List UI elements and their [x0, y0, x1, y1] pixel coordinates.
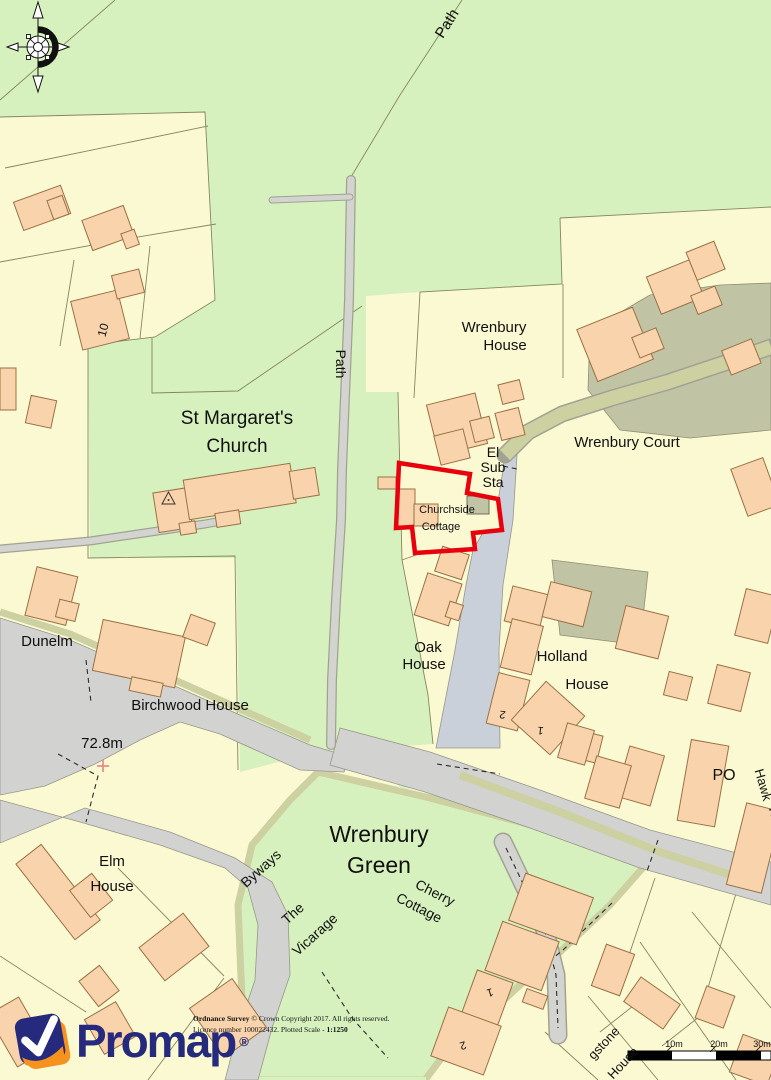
label-scale-30m: 30m — [753, 1039, 771, 1049]
label-birchwood: Birchwood House — [131, 697, 249, 714]
label-scale-20m: 20m — [710, 1039, 728, 1049]
label-wrenbury-green-1: Wrenbury — [329, 821, 429, 847]
copyright-line: © Crown Copyright 2017. All rights reser… — [251, 1014, 389, 1023]
promap-wordmark: Promap — [76, 1018, 235, 1064]
label-spot-height: 72.8m — [81, 735, 123, 752]
promap-logo: Promap ® — [10, 1008, 249, 1074]
plotted-scale: 1:1250 — [327, 1025, 348, 1034]
label-holland-1: Holland — [537, 648, 588, 665]
label-holland-2: House — [565, 676, 608, 693]
label-path-side: Path — [333, 350, 349, 379]
label-wrenbury-house-2: House — [483, 337, 526, 354]
label-po: PO — [712, 767, 735, 784]
promap-icon — [10, 1008, 72, 1074]
label-elm-2: House — [90, 878, 133, 895]
label-el-sub-sta-1: El — [487, 444, 499, 460]
label-st-margarets-2: Church — [206, 436, 267, 457]
map-canvas[interactable]: PathPathSt Margaret'sChurchWrenburyHouse… — [0, 0, 771, 1080]
label-scale-10m: 10m — [665, 1039, 683, 1049]
label-wrenbury-green-2: Green — [347, 852, 411, 878]
label-oak-house-2: House — [402, 656, 445, 673]
label-elm-1: Elm — [99, 853, 125, 870]
registered-mark: ® — [239, 1034, 249, 1049]
label-dunelm: Dunelm — [21, 633, 73, 650]
label-churchside-1: Churchside — [419, 504, 475, 516]
label-churchside-2: Cottage — [422, 521, 461, 533]
label-oak-house-1: Oak — [414, 639, 442, 656]
label-st-margarets-1: St Margaret's — [181, 408, 293, 429]
map-page: PathPathSt Margaret'sChurchWrenburyHouse… — [0, 0, 771, 1080]
label-wrenbury-court: Wrenbury Court — [574, 434, 680, 451]
label-el-sub-sta-3: Sta — [482, 474, 503, 490]
label-el-sub-sta-2: Sub — [481, 459, 506, 475]
label-wrenbury-house-1: Wrenbury — [462, 319, 527, 336]
